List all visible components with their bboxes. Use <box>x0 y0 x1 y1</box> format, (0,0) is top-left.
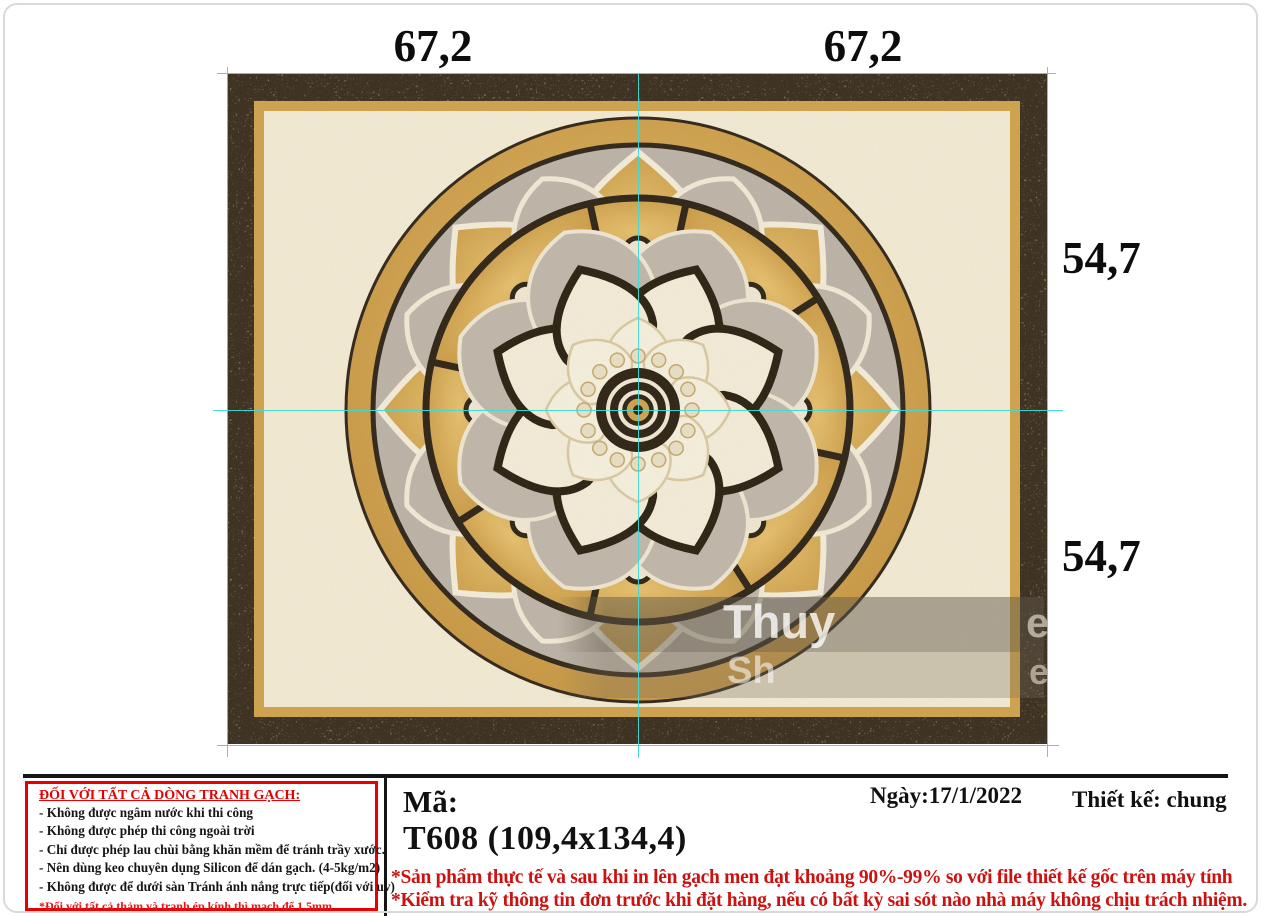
product-code-label: Mã: <box>403 786 458 817</box>
notice-rule-4: - Nên dùng keo chuyên dụng Silicon để dá… <box>39 859 369 877</box>
care-notice-box: ĐỐI VỚI TẤT CẢ DÒNG TRANH GẠCH: - Không … <box>25 781 378 911</box>
notice-note-1: *Đối với tất cả thảm và tranh ép kính th… <box>39 899 369 914</box>
guide-line-right <box>1047 67 1048 757</box>
watermark-text-line2: Sh <box>727 652 776 690</box>
guide-line-left <box>227 67 228 757</box>
guide-line-top <box>217 73 1056 74</box>
watermark-text-line1: Thuy <box>723 598 835 645</box>
watermark-text-right-upper: e <box>1026 602 1049 644</box>
measurement-top-left: 67,2 <box>358 24 508 69</box>
disclaimer-line-2: *Kiểm tra kỹ thông tin đơn trước khi đặt… <box>391 891 1256 911</box>
product-code-value: T608 (109,4x134,4) <box>403 822 687 856</box>
guide-line-center-vertical <box>638 74 639 758</box>
measurement-right-lower: 54,7 <box>1062 534 1141 579</box>
date-label: Ngày:17/1/2022 <box>870 784 1022 807</box>
disclaimer-line-1: *Sản phẩm thực tế và sau khi in lên gạch… <box>391 868 1256 888</box>
notice-rule-2: - Không được phép thi công ngoài trời <box>39 822 369 840</box>
spec-sheet-page: Thuy Sh e e 67,2 67,2 54,7 54,7 ĐỐI VỚI … <box>0 0 1261 916</box>
measurement-top-right: 67,2 <box>788 24 938 69</box>
measurement-right-upper: 54,7 <box>1062 236 1141 281</box>
notice-title: ĐỐI VỚI TẤT CẢ DÒNG TRANH GẠCH: <box>39 787 369 804</box>
notice-rule-1: - Không được ngâm nước khi thi công <box>39 804 369 822</box>
section-divider-line <box>23 774 1228 778</box>
designer-label: Thiết kế: chung <box>1072 788 1227 811</box>
watermark-band-lower <box>557 652 1044 698</box>
notice-rule-5: - Không được để dưới sàn Tránh ánh nắng … <box>39 878 369 896</box>
notice-rule-3: - Chỉ được phép lau chùi bằng khăn mềm đ… <box>39 841 369 859</box>
